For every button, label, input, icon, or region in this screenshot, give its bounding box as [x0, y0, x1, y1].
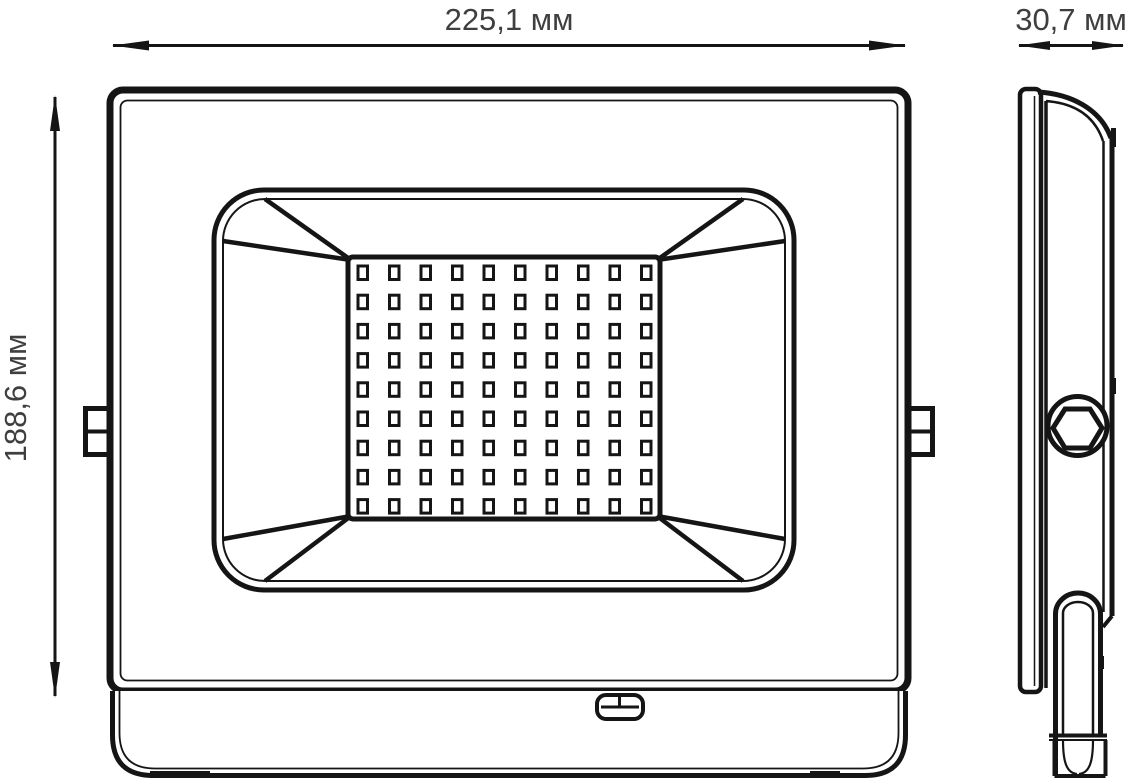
bolt-hexagon-icon	[1053, 409, 1102, 448]
bracket-side-profile	[1049, 593, 1107, 776]
right-side-tab	[908, 409, 933, 455]
arrow-down-icon	[50, 662, 60, 698]
width-dimension: 225,1 мм	[112, 2, 906, 51]
depth-dimension-label: 30,7 мм	[1015, 2, 1127, 37]
width-dimension-label: 225,1 мм	[445, 2, 574, 37]
height-dimension: 188,6 мм	[0, 95, 60, 698]
cable-gland	[597, 695, 643, 719]
height-dimension-label: 188,6 мм	[0, 334, 33, 463]
front-view	[86, 90, 933, 776]
housing-nub-top	[1111, 128, 1116, 147]
arrow-up-icon	[50, 95, 60, 131]
housing-nub-mid	[1111, 378, 1116, 394]
bracket-nub	[1099, 656, 1104, 669]
arrow-left-icon	[112, 41, 149, 51]
arrow-left-icon	[1018, 41, 1050, 50]
mounting-bracket	[113, 691, 906, 776]
pivot-bolt	[1048, 397, 1107, 456]
depth-dimension: 30,7 мм	[1015, 2, 1127, 50]
technical-drawing: 225,1 мм 30,7 мм 188,6 мм	[0, 0, 1144, 784]
drawing-canvas: 225,1 мм 30,7 мм 188,6 мм	[0, 0, 1144, 784]
glass-slab	[1020, 89, 1041, 692]
side-view	[1020, 89, 1116, 776]
left-side-tab	[86, 409, 111, 455]
arrow-right-icon	[1092, 41, 1124, 50]
arrow-right-icon	[869, 41, 906, 51]
